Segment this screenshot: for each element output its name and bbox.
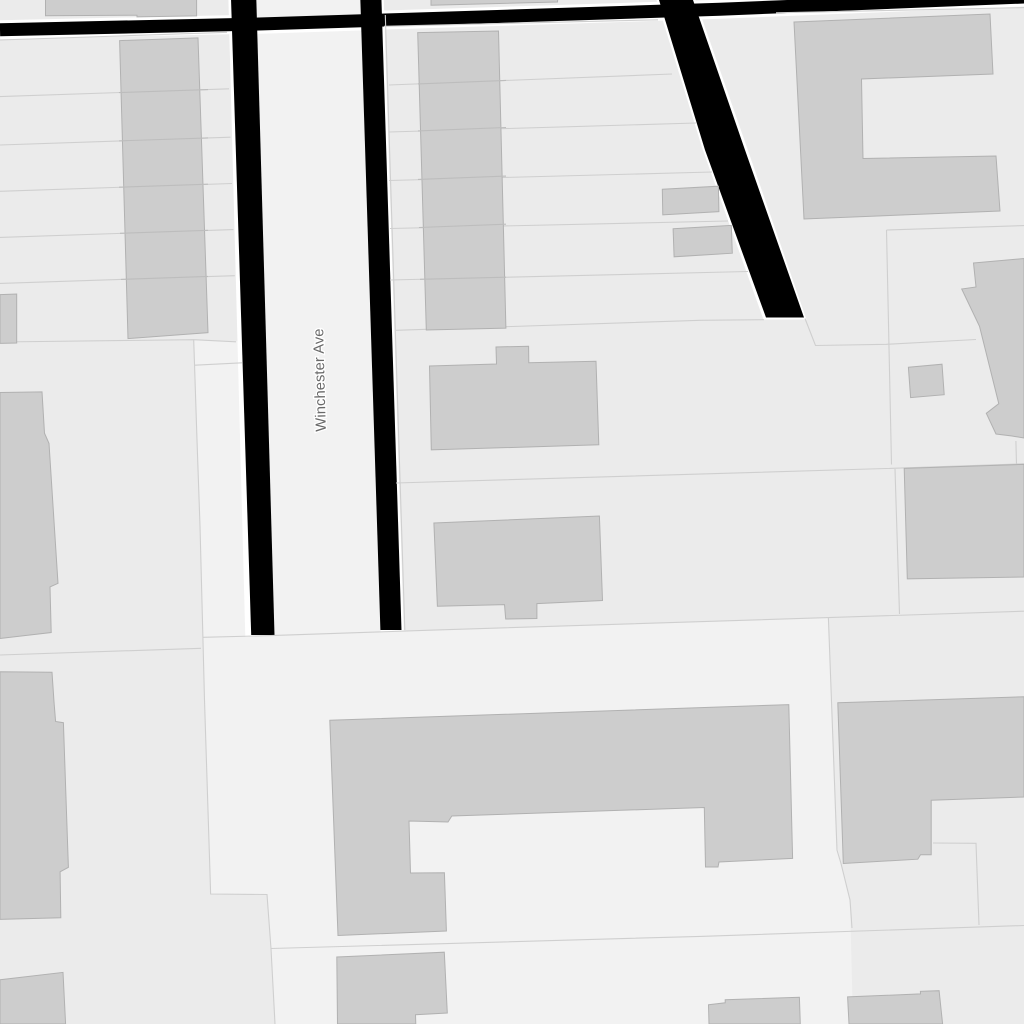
svg-text:Winchester Ave: Winchester Ave (311, 328, 330, 432)
